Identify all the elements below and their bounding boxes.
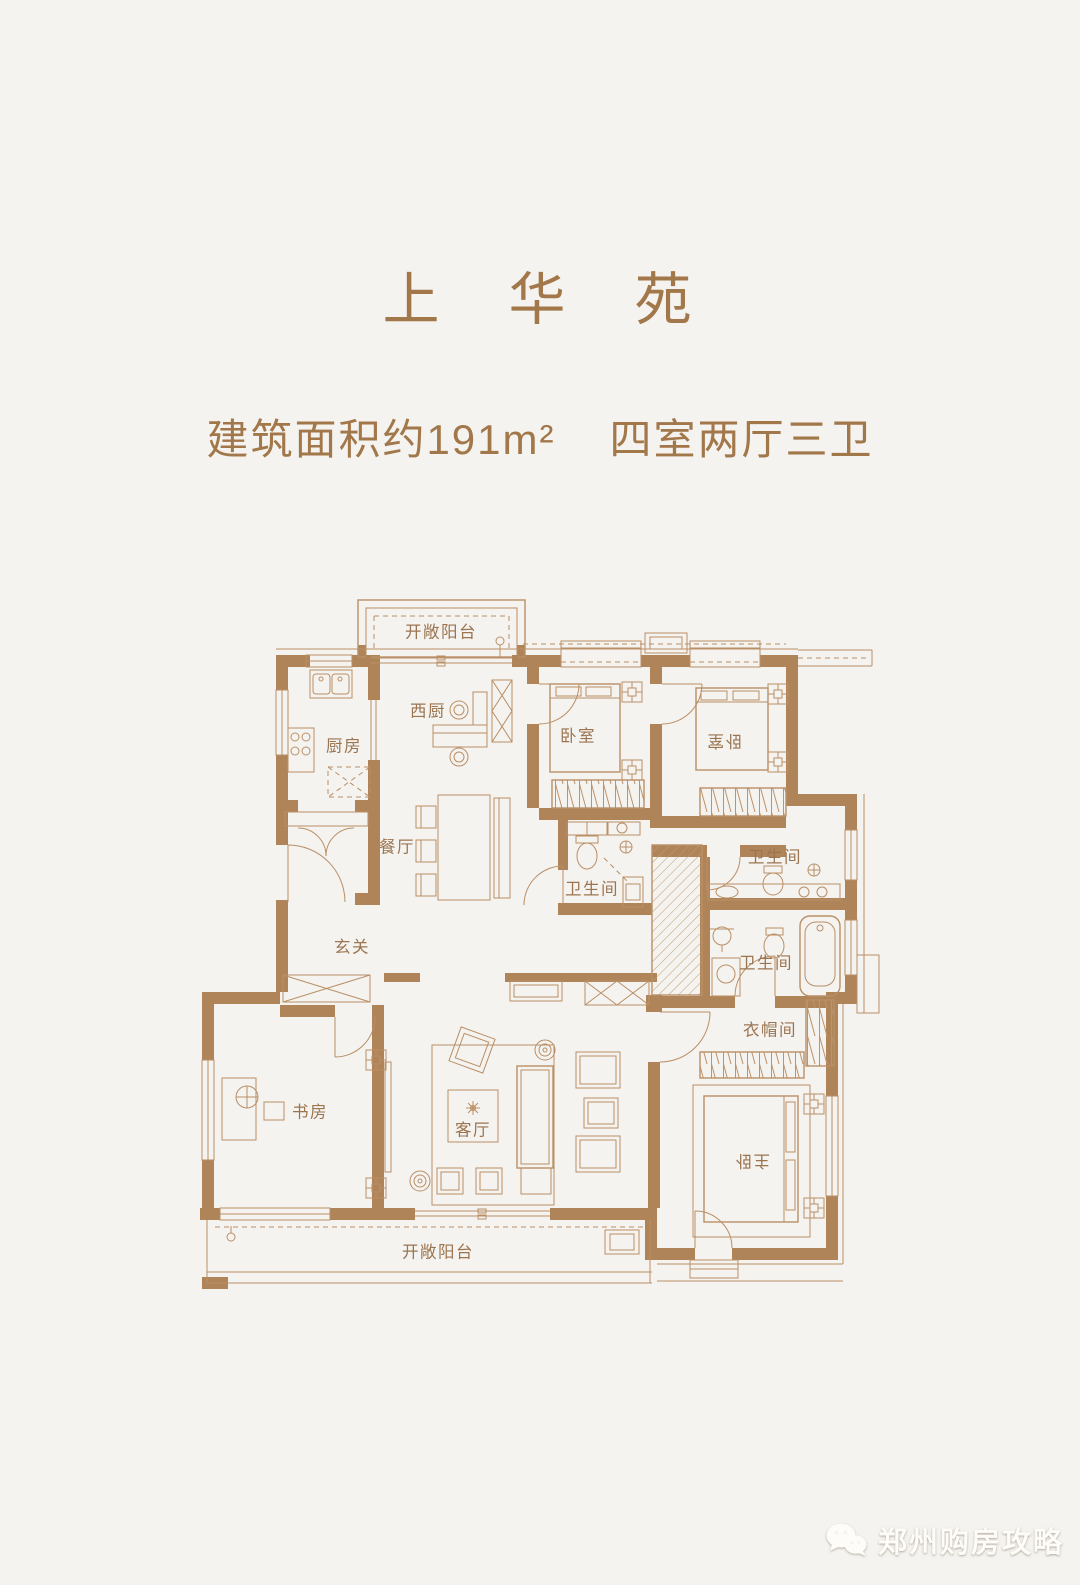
room-label-balcony-bottom: 开敞阳台	[402, 1242, 474, 1261]
shaft-hatch	[652, 845, 702, 995]
room-label-living: 客厅	[455, 1120, 491, 1139]
room-label-cloakroom: 衣帽间	[743, 1020, 797, 1039]
art-square	[449, 1027, 495, 1073]
room-label-bedroom-right: 卧室	[706, 732, 742, 751]
subtitle: 建筑面积约191m² 四室两厅三卫	[0, 406, 1080, 467]
room-label-bath-lower: 卫生间	[739, 953, 793, 972]
living-furniture	[410, 1027, 620, 1205]
hall-cabinet	[285, 812, 368, 826]
room-label-dining: 餐厅	[379, 837, 415, 856]
poster: 上 华 苑 建筑面积约191m² 四室两厅三卫	[0, 0, 1080, 1585]
wardrobe	[552, 780, 644, 808]
page-title: 上 华 苑	[0, 254, 1080, 336]
slider-kitchen	[371, 700, 376, 760]
flower-icon	[466, 1101, 480, 1115]
room-label-west-kitchen: 西厨	[410, 702, 446, 720]
wardrobe	[700, 788, 786, 816]
washer-icon	[623, 877, 643, 907]
desk	[222, 1078, 256, 1140]
area-text: 建筑面积约191m²	[206, 406, 555, 467]
rug	[432, 1045, 554, 1205]
stove-icon	[288, 728, 314, 772]
room-label-entry: 玄关	[334, 937, 370, 956]
room-label-bath-middle: 卫生间	[565, 879, 619, 898]
room-label-kitchen: 厨房	[326, 736, 362, 755]
tv-panel	[385, 1062, 391, 1172]
floorplan-svg: 开敞阳台 厨房 西厨 餐厅 卧室 卧室 卫生间 卫生间 卫生间 玄关 书房 客厅…	[190, 590, 880, 1290]
ac-unit-icon	[605, 1230, 639, 1254]
watermark: 郑州购房攻略	[825, 1519, 1064, 1561]
shower-icon	[808, 864, 820, 876]
room-label-balcony-top: 开敞阳台	[405, 622, 477, 641]
room-label-master: 主卧	[734, 1152, 770, 1171]
toilet-icon	[763, 866, 783, 895]
wechat-icon	[825, 1522, 869, 1558]
armchairs	[576, 1052, 620, 1172]
sofa	[517, 1066, 553, 1194]
basin-icon	[710, 927, 734, 952]
layout-text: 四室两厅三卫	[610, 406, 874, 467]
tall-cabinet	[492, 680, 512, 742]
bathtub-icon	[800, 916, 840, 996]
sink-icon	[310, 670, 352, 698]
watermark-text: 郑州购房攻略	[878, 1519, 1064, 1561]
washer-pair-icon	[799, 887, 827, 897]
dining-furniture	[416, 795, 510, 900]
desk-chair-icon	[236, 1086, 258, 1108]
west-kitchen-furniture	[433, 680, 512, 766]
thermometer-icon	[227, 1226, 235, 1241]
windows	[202, 633, 857, 1220]
toilet-icon	[576, 836, 598, 869]
fridge-icon	[328, 767, 370, 797]
room-label-study: 书房	[292, 1102, 328, 1121]
study-furniture	[222, 1050, 391, 1198]
stools	[437, 1168, 502, 1194]
room-label-bath-upper: 卫生间	[748, 847, 802, 866]
room-label-bedroom-left: 卧室	[560, 726, 596, 745]
room-labels: 开敞阳台 厨房 西厨 餐厅 卧室 卧室 卫生间 卫生间 卫生间 玄关 书房 客厅…	[292, 622, 802, 1261]
shower-icon	[604, 841, 632, 884]
slider-living-bottom	[410, 1208, 555, 1220]
column-icon	[496, 637, 504, 658]
